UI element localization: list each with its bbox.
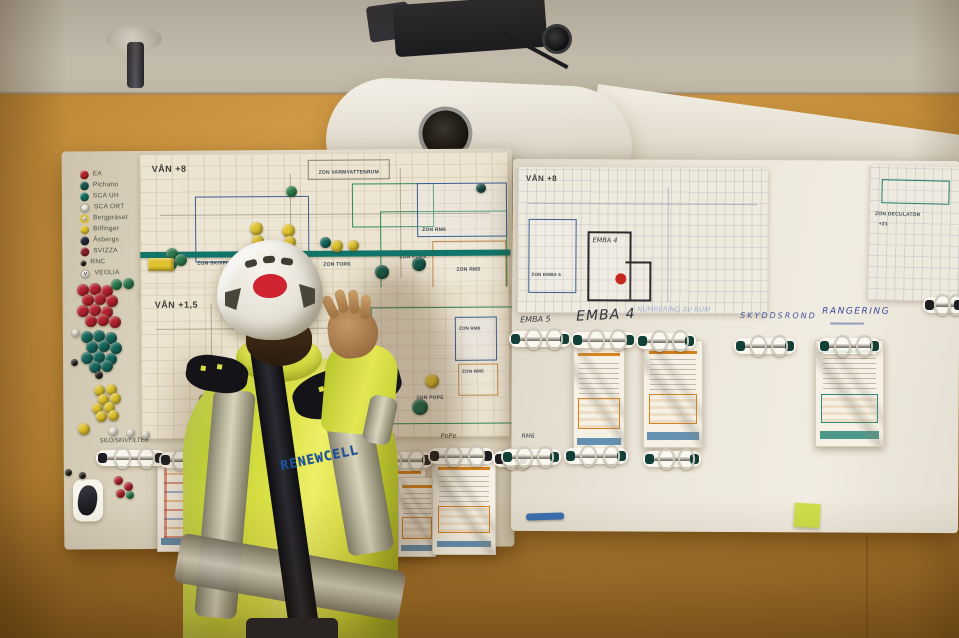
magnet-dot (101, 360, 113, 372)
document-sheet (573, 342, 625, 454)
document-sheet (432, 457, 496, 555)
binder-rings (513, 331, 567, 347)
magnet-dot (476, 183, 486, 193)
magnet-dot (250, 222, 263, 235)
magnet-dot (79, 472, 86, 479)
document-sheet (643, 340, 703, 448)
magnet-dot (127, 429, 135, 437)
magnet-dot (109, 427, 118, 436)
magnet-dot (284, 236, 296, 248)
document-sheet (815, 340, 884, 447)
magnet-dot (109, 316, 121, 328)
binder-rings (647, 451, 697, 467)
magnet-dot (412, 399, 428, 415)
magnet-dot (124, 482, 133, 491)
binder-rings (373, 452, 429, 468)
magnet-dot (95, 371, 103, 379)
binder-rings (163, 452, 203, 468)
magnet-dot (199, 394, 210, 405)
magnet-dot (111, 279, 122, 290)
board-attachments (0, 0, 959, 638)
binder-rings (568, 448, 624, 464)
magnet-dot (65, 469, 72, 476)
document-sheet (157, 460, 207, 552)
magnet-dot (116, 489, 125, 498)
magnet-dot (72, 329, 80, 337)
magnet-dot (412, 257, 426, 271)
magnet-dot (78, 423, 90, 435)
magnet-dot (425, 374, 439, 388)
binder-rings (575, 332, 632, 348)
magnet-dot (97, 314, 109, 326)
magnet-dot (331, 240, 343, 252)
magnet-dot (108, 410, 119, 421)
binder-rings (822, 338, 877, 354)
magnet-dot (252, 235, 264, 247)
binder-rings (432, 448, 490, 464)
magnet-dot (126, 491, 134, 499)
magnet-dot (348, 240, 359, 251)
magnet-dot (286, 186, 297, 197)
magnet-dot (142, 431, 150, 439)
binder-rings (505, 449, 557, 465)
magnet-dot (123, 278, 134, 289)
binder-rings (640, 333, 692, 349)
magnet-dot (71, 359, 78, 366)
binder-rings (100, 450, 162, 466)
magnet-dot (114, 476, 123, 485)
magnet-dot (85, 315, 97, 327)
magnet-dot (320, 237, 331, 248)
binder-rings (738, 338, 792, 354)
document-sheet (398, 477, 436, 557)
magnet-dot (247, 255, 259, 267)
magnet-dot (148, 258, 174, 271)
magnet-dot (375, 265, 389, 279)
magnet-dot (96, 411, 107, 422)
photo-scene: EAPichanoSCA UHSCA ORTBergpräsetBilfinge… (0, 0, 959, 638)
binder-rings (927, 297, 959, 313)
